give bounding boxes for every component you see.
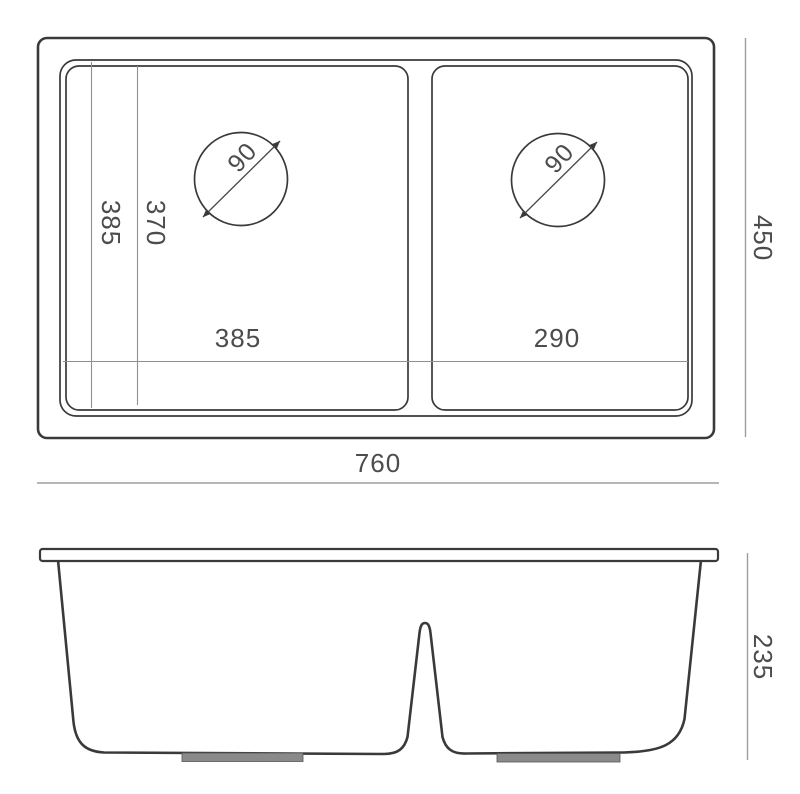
overall-depth-label: 450 <box>748 215 778 261</box>
sink-technical-drawing: 90 90 385 370 385 290 760 450 <box>0 0 800 794</box>
right-bowl-width-label: 290 <box>534 323 580 353</box>
overall-width-label: 760 <box>355 448 401 478</box>
bowl-depth-label-inner: 370 <box>141 200 171 246</box>
top-view: 90 90 385 370 385 290 760 450 <box>37 38 778 483</box>
bowl-depth-label-outer: 385 <box>96 200 126 246</box>
front-rim-bar <box>40 549 718 561</box>
drawing-canvas: 90 90 385 370 385 290 760 450 <box>0 0 800 794</box>
sink-outer-edge <box>38 38 714 438</box>
right-bowl <box>432 66 688 410</box>
height-label: 235 <box>748 634 778 680</box>
left-drain-diameter-label: 90 <box>222 137 263 178</box>
left-foot-pad <box>182 753 303 762</box>
front-view: 235 <box>40 549 778 762</box>
front-body <box>58 560 701 754</box>
left-bowl-width-label: 385 <box>215 323 261 353</box>
right-drain-diameter-label: 90 <box>539 138 580 179</box>
right-foot-pad <box>497 754 620 763</box>
